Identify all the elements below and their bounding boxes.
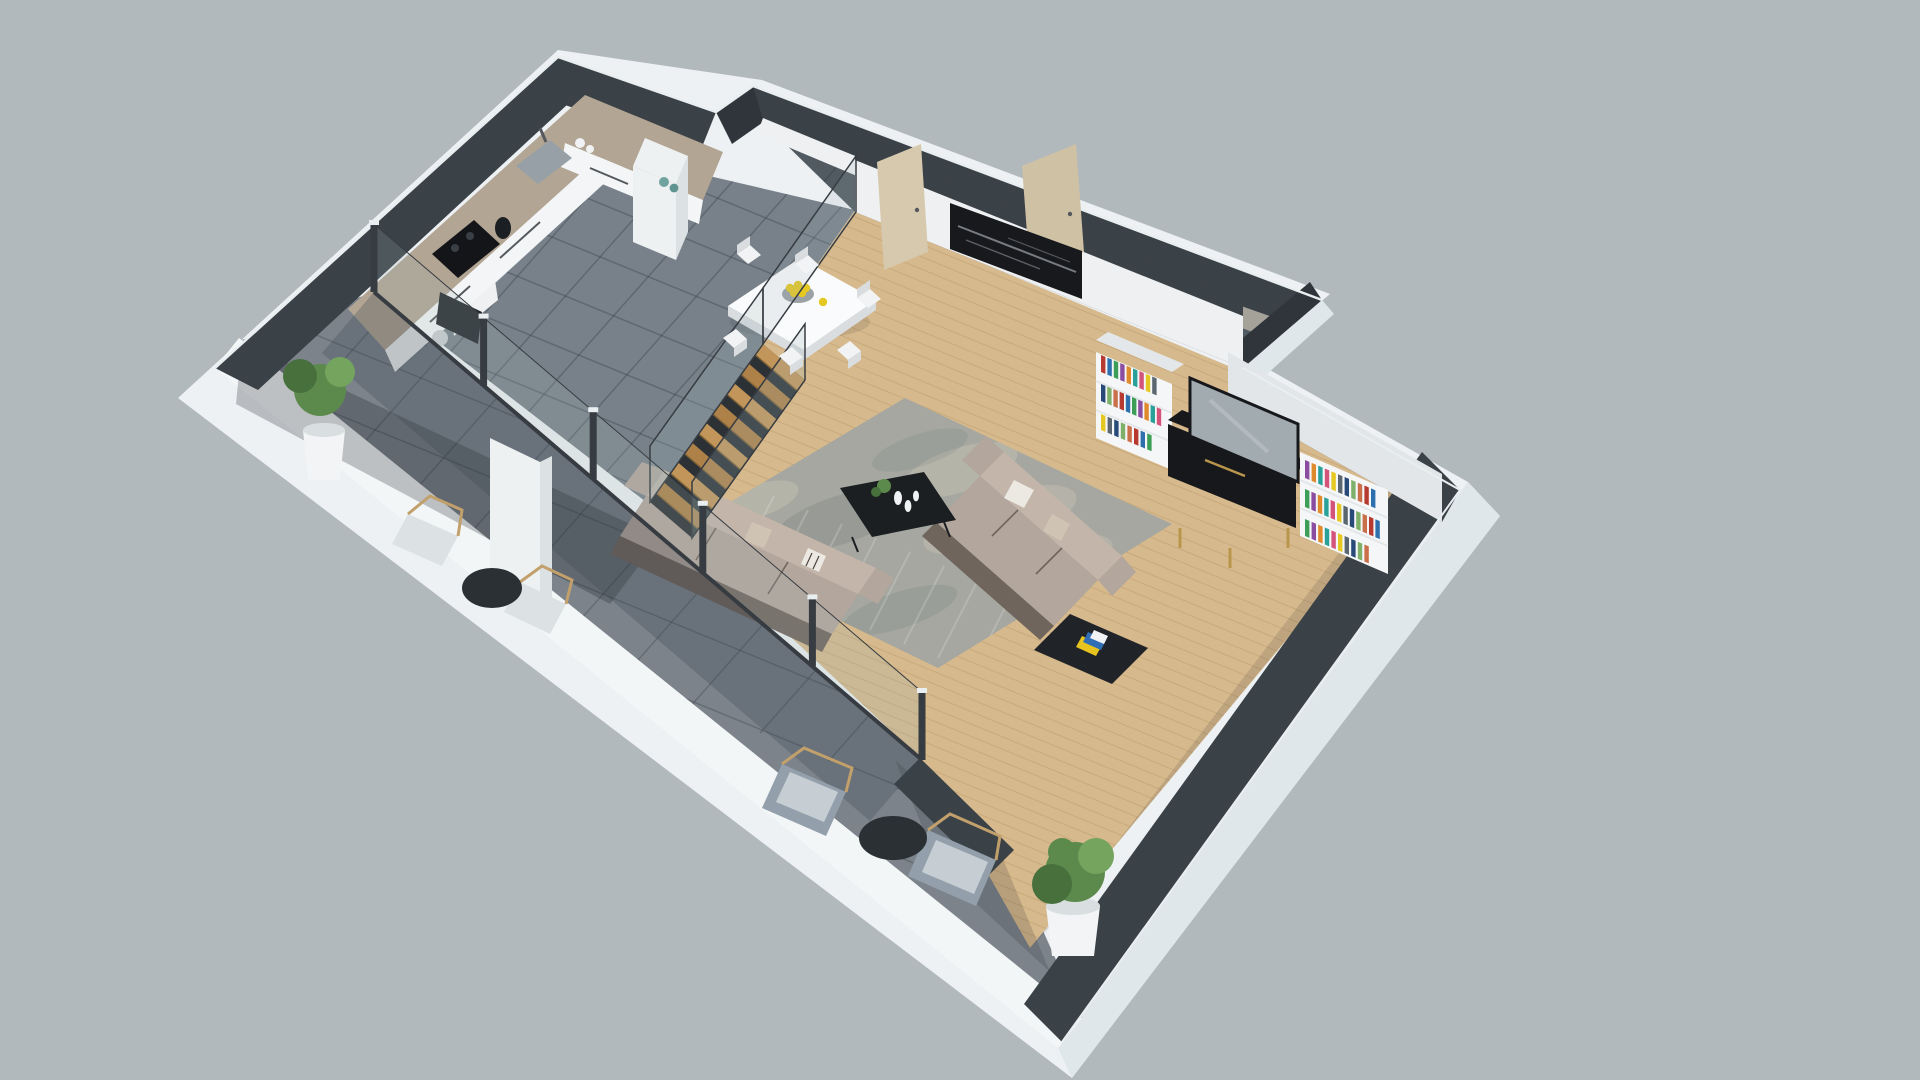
- book-spine: [1325, 528, 1329, 547]
- book-spine: [1108, 417, 1112, 435]
- book-spine: [1305, 460, 1309, 480]
- book-spine: [1345, 536, 1349, 555]
- book-spine: [1107, 387, 1111, 406]
- canister: [575, 138, 585, 148]
- vase: [894, 491, 902, 505]
- book-spine: [1338, 474, 1342, 494]
- post-cap: [807, 594, 817, 599]
- book-spine: [1133, 368, 1137, 387]
- book-spine: [1101, 384, 1105, 403]
- book-spine: [1312, 463, 1316, 483]
- book-spine: [1132, 397, 1136, 416]
- book-spine: [1146, 374, 1150, 393]
- book-spine: [1363, 514, 1367, 534]
- book-spine: [1331, 471, 1335, 491]
- book-spine: [1141, 431, 1145, 449]
- post-cap: [917, 688, 927, 693]
- vase: [905, 500, 912, 512]
- book-spine: [1350, 508, 1354, 528]
- book-spine: [1337, 503, 1341, 523]
- jar-teal: [670, 184, 679, 193]
- book-spine: [1126, 394, 1130, 413]
- floorplan-stage: [0, 0, 1920, 1080]
- book-spine: [1331, 530, 1335, 549]
- book-spine: [1356, 511, 1360, 531]
- facade-pillar-side: [540, 456, 552, 612]
- book-spine: [1343, 506, 1347, 526]
- post-cap: [479, 314, 489, 319]
- book-spine: [1120, 363, 1124, 382]
- book-spine: [1311, 492, 1315, 512]
- book-spine: [1318, 495, 1322, 515]
- door-handle: [1068, 212, 1072, 216]
- book-spine: [1157, 407, 1161, 426]
- book-spine: [1139, 371, 1143, 390]
- post-cap: [698, 501, 708, 506]
- book-spine: [1318, 466, 1322, 486]
- glass-post: [371, 224, 378, 292]
- book-spine: [1113, 389, 1117, 408]
- book-spine: [1351, 480, 1355, 500]
- vase: [913, 491, 919, 502]
- book-spine: [1375, 519, 1379, 539]
- book-spine: [1358, 483, 1362, 503]
- book-spine: [1120, 392, 1124, 411]
- book-spine: [1147, 433, 1151, 451]
- jar-teal: [659, 177, 669, 187]
- book-spine: [1369, 517, 1373, 537]
- book-spine: [1331, 500, 1335, 520]
- outdoor-table: [859, 816, 927, 860]
- post-cap: [369, 220, 379, 225]
- book-spine: [1324, 497, 1328, 517]
- outdoor-table: [462, 568, 522, 608]
- book-spine: [1144, 402, 1148, 421]
- book-spine: [1338, 533, 1342, 552]
- table-plant: [871, 487, 881, 497]
- book-spine: [1312, 522, 1316, 541]
- book-spine: [1114, 360, 1118, 379]
- book-spine: [1371, 488, 1375, 508]
- book-spine: [1358, 542, 1362, 561]
- book-spine: [1151, 405, 1155, 424]
- book-spine: [1364, 545, 1368, 564]
- book-spine: [1107, 358, 1111, 377]
- burner: [466, 232, 474, 240]
- book-spine: [1305, 519, 1309, 538]
- burner: [451, 244, 459, 252]
- book-spine: [1345, 477, 1349, 497]
- book-spine: [1101, 414, 1105, 432]
- book-spine: [1101, 355, 1105, 374]
- book-spine: [1351, 539, 1355, 558]
- door-handle: [915, 208, 919, 212]
- book-spine: [1134, 428, 1138, 446]
- book-spine: [1325, 469, 1329, 489]
- glass-post: [919, 692, 926, 760]
- book-spine: [1318, 525, 1322, 544]
- book-spine: [1152, 377, 1156, 396]
- book-spine: [1121, 422, 1125, 440]
- floor-plan-render: [0, 0, 1920, 1080]
- book-spine: [1114, 420, 1118, 438]
- book-spine: [1127, 366, 1131, 385]
- glass-post: [480, 318, 487, 386]
- canister: [586, 145, 594, 153]
- book-spine: [1305, 489, 1309, 509]
- book-spine: [1364, 486, 1368, 506]
- book-spine: [1138, 400, 1142, 419]
- post-cap: [588, 407, 598, 412]
- black-vase: [495, 217, 511, 239]
- interior-door: [877, 144, 928, 270]
- glass-post: [809, 598, 816, 666]
- lemon: [819, 298, 827, 306]
- glass-post: [590, 411, 597, 479]
- book-spine: [1127, 425, 1131, 443]
- glass-post: [699, 505, 706, 573]
